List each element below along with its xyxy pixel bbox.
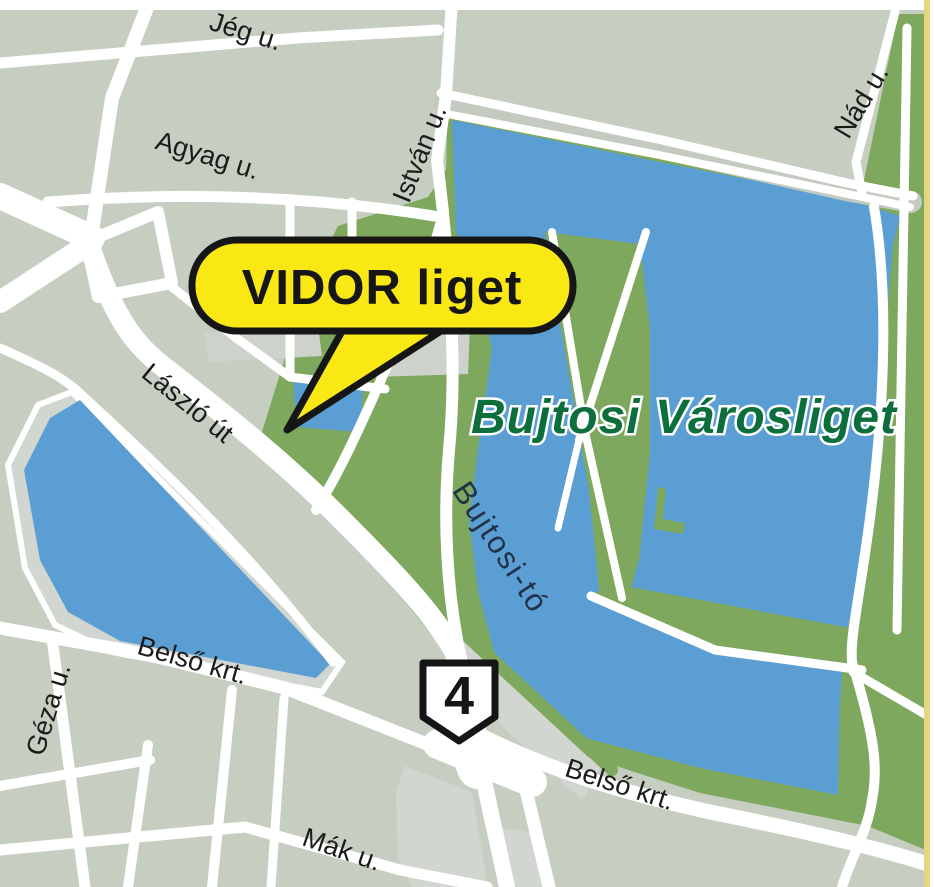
- map-border-margin: [930, 0, 934, 887]
- map-border-line: [924, 0, 930, 887]
- map-canvas: VIDOR liget 4 Jég u. Agyag u. István u. …: [0, 0, 934, 887]
- city-map: VIDOR liget 4 Jég u. Agyag u. István u. …: [0, 0, 934, 887]
- callout-label: VIDOR liget: [242, 261, 523, 315]
- route-shield-number: 4: [444, 666, 474, 726]
- park-title-label: Bujtosi Városliget: [471, 391, 898, 444]
